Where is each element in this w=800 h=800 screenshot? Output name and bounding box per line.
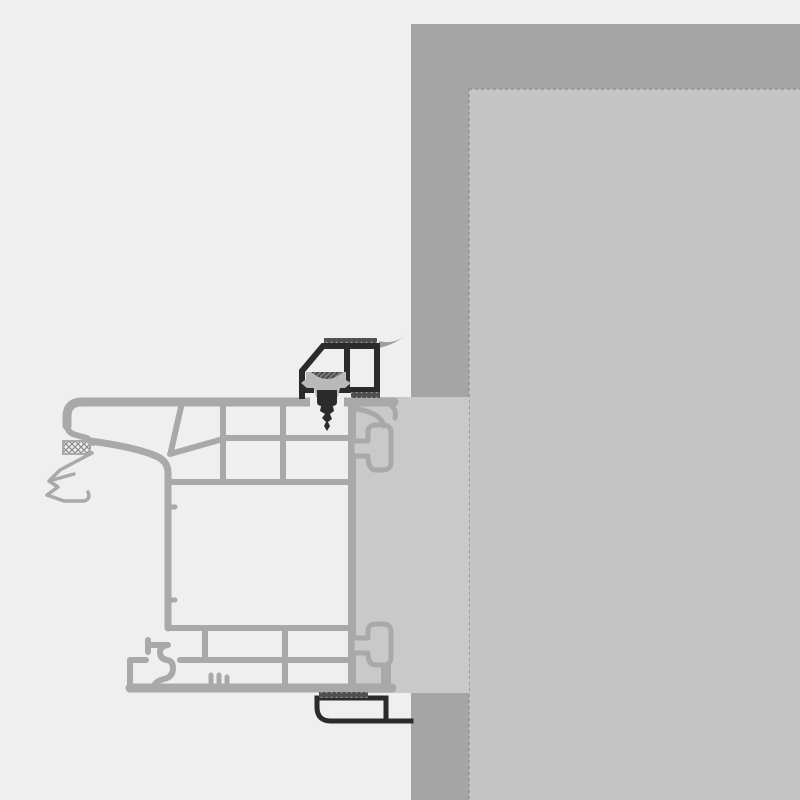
installation-detail-stage: Window frame installation cross-section — [0, 0, 800, 800]
screw-head — [317, 390, 337, 406]
bracket-base-tape — [351, 392, 380, 398]
trim-tape — [319, 692, 368, 698]
outer-gasket-block — [63, 441, 90, 454]
cross-section-diagram: Window frame installation cross-section — [0, 0, 800, 800]
window-reveal — [469, 89, 800, 800]
